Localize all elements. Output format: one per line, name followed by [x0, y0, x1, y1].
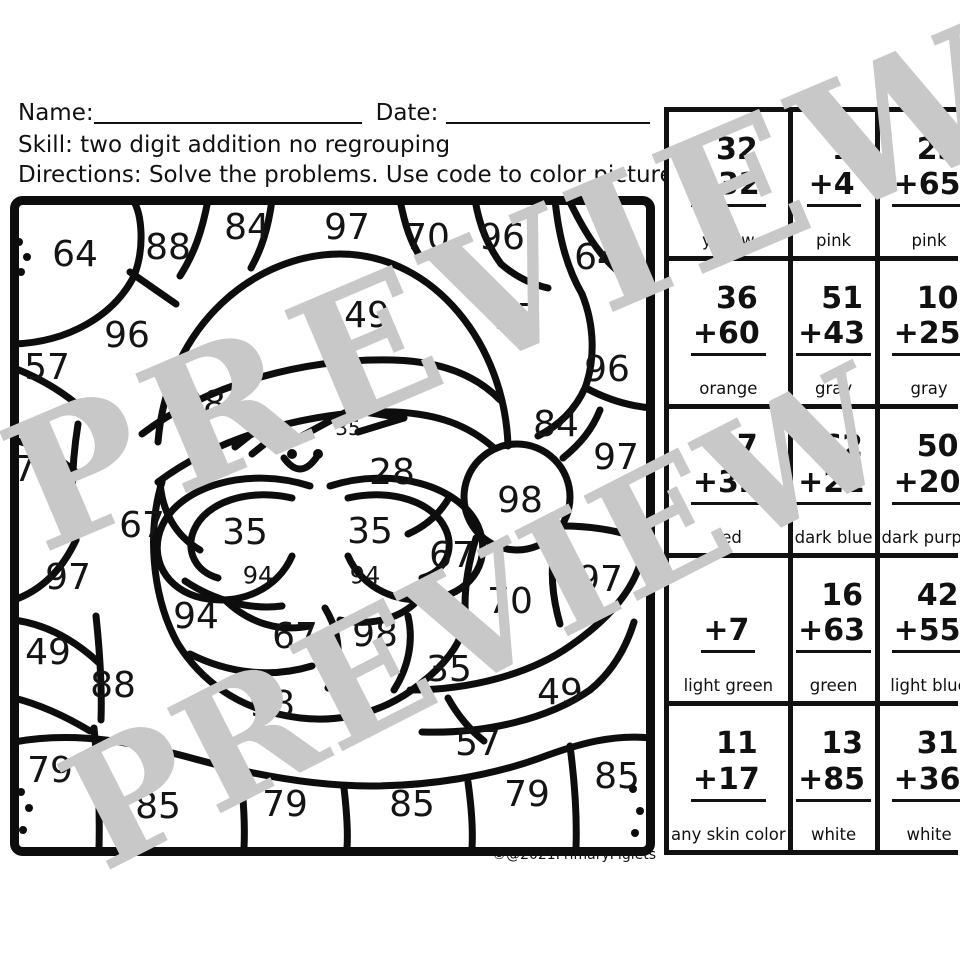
- addend-top: 36: [716, 281, 766, 316]
- addend-bottom: +22: [796, 465, 871, 505]
- addend-bottom: +63: [796, 613, 871, 653]
- addend-top: 31: [917, 726, 960, 761]
- region-number: 98: [249, 684, 295, 725]
- region-number: 79: [27, 750, 73, 791]
- color-label: white: [906, 825, 951, 844]
- addend-bottom: +55: [892, 613, 960, 653]
- color-label: red: [715, 528, 742, 547]
- region-number: 35: [335, 416, 360, 440]
- region-number: 85: [389, 784, 435, 825]
- color-label: yellow: [702, 231, 755, 250]
- region-number: 35: [222, 512, 268, 553]
- color-label: orange: [699, 379, 757, 398]
- date-label: Date:: [376, 100, 439, 126]
- color-label: green: [810, 676, 858, 695]
- addend-top: 42: [917, 578, 960, 613]
- picture-numbers: 6488849770966496574957969835288497706735…: [13, 207, 640, 827]
- region-number: 49: [344, 295, 390, 336]
- region-number: 97: [45, 557, 91, 598]
- region-number: 96: [479, 217, 525, 258]
- code-cell: 32+32yellow: [669, 112, 788, 256]
- color-label: light green: [684, 676, 773, 695]
- addend-top: 1: [832, 132, 861, 167]
- code-cell: 51+43gray: [793, 261, 875, 405]
- code-cell: 11+17any skin color: [669, 706, 788, 850]
- santa-line-art: [14, 200, 651, 852]
- region-number: 96: [104, 315, 150, 356]
- region-number: 67: [272, 616, 318, 657]
- color-label: pink: [912, 231, 947, 250]
- region-number: 98: [497, 480, 543, 521]
- code-cell: 10+25gray: [880, 261, 960, 405]
- addend-top: 62: [821, 429, 871, 464]
- addend-bottom: +32: [691, 167, 766, 207]
- addend-top: 51: [821, 281, 871, 316]
- code-cell: 13+85white: [793, 706, 875, 850]
- region-number: 79: [262, 784, 308, 825]
- worksheet-page: Name:Date: Skill: two digit addition no …: [0, 0, 960, 960]
- name-blank-line: [94, 100, 362, 124]
- code-cell: 1+4pink: [793, 112, 875, 256]
- addend-bottom: +20: [892, 465, 960, 505]
- addend-bottom: +7: [701, 613, 755, 653]
- color-label: dark purple: [882, 528, 960, 547]
- region-number: 49: [537, 672, 583, 713]
- color-label: white: [811, 825, 856, 844]
- addend-top: 11: [716, 726, 766, 761]
- region-number: 70: [13, 449, 59, 490]
- region-number: 70: [487, 581, 533, 622]
- addend-bottom: +60: [691, 316, 766, 356]
- region-number: 57: [455, 723, 501, 764]
- region-number: 98: [352, 614, 398, 655]
- region-number: 88: [145, 227, 191, 268]
- code-cell: 42+55light blue: [880, 558, 960, 702]
- region-number: 64: [574, 237, 620, 278]
- region-number: 35: [426, 649, 472, 690]
- code-cell: 31+36white: [880, 706, 960, 850]
- code-cell: 16+63green: [793, 558, 875, 702]
- region-number: 94: [243, 562, 274, 590]
- region-number: 97: [593, 437, 639, 478]
- addend-top: 13: [821, 726, 871, 761]
- region-number: 57: [494, 297, 540, 338]
- addend-top: 50: [917, 429, 960, 464]
- addend-bottom: +36: [892, 762, 960, 802]
- color-label: gray: [910, 379, 947, 398]
- region-number: 67: [429, 535, 475, 576]
- addend-bottom: +85: [796, 762, 871, 802]
- region-number: 57: [24, 347, 70, 388]
- addend-bottom: +17: [691, 762, 766, 802]
- region-number: 97: [577, 559, 623, 600]
- coloring-picture: 6488849770966496574957969835288497706735…: [10, 196, 655, 856]
- region-number: 85: [135, 786, 181, 827]
- addend-bottom: +4: [807, 167, 861, 207]
- addend-top: 16: [821, 578, 871, 613]
- color-label: dark blue: [795, 528, 873, 547]
- region-number: 67: [119, 505, 165, 546]
- addend-top: 17: [716, 429, 766, 464]
- region-number: 79: [504, 774, 550, 815]
- color-label: gray: [815, 379, 852, 398]
- addend-bottom: +65: [892, 167, 960, 207]
- addend-top: 23: [917, 132, 960, 167]
- code-cell: 36+60orange: [669, 261, 788, 405]
- region-number: 97: [324, 207, 370, 248]
- color-label: pink: [816, 231, 851, 250]
- color-code-table: 32+32yellow 1+4pink 23+65pink 36+60orang…: [664, 107, 958, 855]
- date-blank-line: [446, 100, 650, 124]
- region-number: 96: [584, 349, 630, 390]
- color-label: light blue: [890, 676, 960, 695]
- copyright-credit: ©@2021PrimaryPiglets: [10, 847, 656, 863]
- code-cell: 62+22dark blue: [793, 409, 875, 553]
- addend-bottom: +32: [691, 465, 766, 505]
- region-number: 84: [533, 404, 579, 445]
- region-number: 98: [180, 384, 226, 425]
- region-number: 85: [594, 756, 640, 797]
- region-number: 28: [369, 452, 415, 493]
- name-date-row: Name:Date:: [18, 100, 650, 126]
- region-number: 35: [347, 511, 393, 552]
- code-cell: 50+20dark purple: [880, 409, 960, 553]
- region-number: 70: [404, 217, 450, 258]
- addend-top: 32: [716, 132, 766, 167]
- addend-top: 10: [917, 281, 960, 316]
- code-cell: 17+32red: [669, 409, 788, 553]
- code-cell: +7light green: [669, 558, 788, 702]
- region-number: 49: [25, 632, 71, 673]
- skill-line: Skill: two digit addition no regrouping: [18, 132, 450, 158]
- code-cell: 23+65pink: [880, 112, 960, 256]
- region-number: 64: [52, 234, 98, 275]
- addend-bottom: +25: [892, 316, 960, 356]
- directions-line: Directions: Solve the problems. Use code…: [18, 162, 681, 188]
- region-number: 94: [350, 562, 381, 590]
- addend-bottom: +43: [796, 316, 871, 356]
- region-number: 94: [173, 596, 219, 637]
- region-number: 84: [224, 207, 270, 248]
- addend-top: [747, 578, 755, 613]
- region-number: 88: [90, 665, 136, 706]
- color-label: any skin color: [671, 825, 786, 844]
- name-label: Name:: [18, 100, 94, 126]
